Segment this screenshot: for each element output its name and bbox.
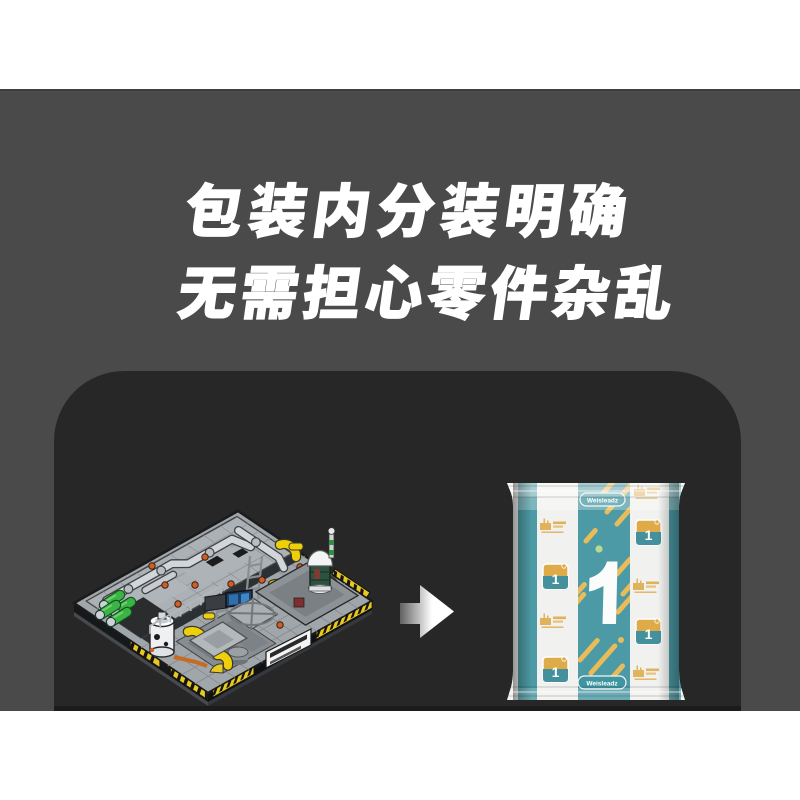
svg-text:1: 1 <box>645 527 653 543</box>
svg-text:1: 1 <box>645 626 653 642</box>
svg-text:1: 1 <box>552 571 560 587</box>
svg-text:1: 1 <box>552 664 560 680</box>
